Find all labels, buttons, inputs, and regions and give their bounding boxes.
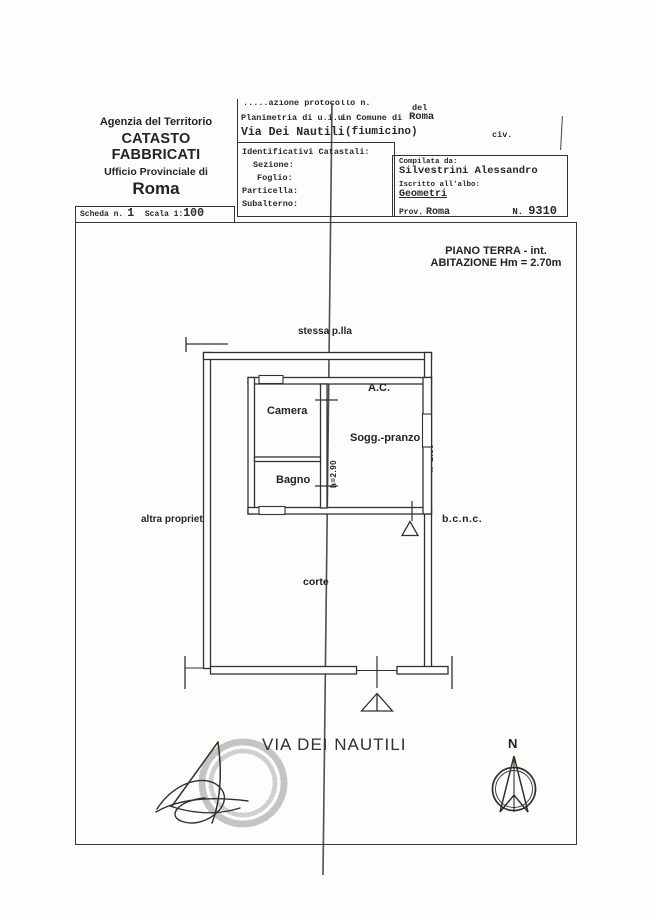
compiler-name: Silvestrini Alessandro xyxy=(399,166,561,177)
albo-value: Geometri xyxy=(399,189,561,200)
label-corte: corte xyxy=(303,576,329,588)
label-ac: A.C. xyxy=(368,382,390,394)
floor-header-line1: PIANO TERRA - int. xyxy=(418,245,574,257)
prov-label: Prov. xyxy=(399,208,423,217)
agency-line: Agenzia del Territorio xyxy=(78,116,234,128)
cadastral-ids-box: Identificativi Catastali: Sezione: Fogli… xyxy=(237,142,395,217)
field-foglio: Foglio: xyxy=(242,172,390,185)
scheda-box: Scheda n. 1 Scala 1: 100 xyxy=(75,206,235,223)
field-sezione: Sezione: xyxy=(242,159,390,172)
agency-header: Agenzia del Territorio CATASTO FABBRICAT… xyxy=(78,116,234,199)
label-stessa-particella: stessa p.lla xyxy=(298,326,352,337)
cadastral-ids-title: Identificativi Catastali: xyxy=(242,146,390,159)
albo-label: Iscritto all'albo: xyxy=(399,181,561,189)
scheda-number: 1 xyxy=(127,207,134,220)
agency-catasto-title: CATASTO FABBRICATI xyxy=(78,131,234,163)
compiler-box: Compilata da: Silvestrini Alessandro Isc… xyxy=(392,155,568,217)
label-camera: Camera xyxy=(267,405,307,417)
label-soggiorno-pranzo: Sogg.-pranzo xyxy=(350,432,420,444)
comune-value: Roma xyxy=(409,111,434,123)
street-title: VIA DEI NAUTILI xyxy=(262,735,406,755)
comune-label: in Comune di xyxy=(341,113,402,123)
scheda-label: Scheda n. xyxy=(80,210,123,219)
registration-number-label: N. xyxy=(512,207,523,217)
registration-number-value: 9310 xyxy=(528,204,557,218)
protocol-number-line: .....azione protocollo n. xyxy=(243,100,413,109)
planimetria-label: Planimetria di u.i.u xyxy=(241,113,343,123)
label-height-left: h=2.90 xyxy=(329,446,338,488)
scala-value: 100 xyxy=(183,207,204,220)
compass-north-label: N xyxy=(508,736,517,751)
field-subalterno: Subalterno: xyxy=(242,198,390,211)
scala-label: Scala 1: xyxy=(145,210,183,219)
scanned-cadastral-document: Agenzia del Territorio CATASTO FABBRICAT… xyxy=(0,0,650,918)
protocol-box-left-border xyxy=(237,99,238,143)
civ-label: civ. xyxy=(492,130,512,140)
label-height-right: h=2.80 xyxy=(426,430,435,472)
floor-header-line2: ABITAZIONE Hm = 2.70m xyxy=(418,257,574,269)
field-particella: Particella: xyxy=(242,185,390,198)
label-bagno: Bagno xyxy=(276,474,310,486)
agency-office-line: Ufficio Provinciale di xyxy=(78,166,234,178)
prov-value: Roma xyxy=(426,207,450,218)
label-bcnc: b.c.n.c. xyxy=(442,513,482,525)
street-field-value: Via Dei Nautili xyxy=(241,126,345,139)
protocol-box-right-border xyxy=(560,116,563,150)
agency-city: Roma xyxy=(78,179,234,199)
label-altra-proprieta: altra proprietà xyxy=(141,514,208,525)
floor-header: PIANO TERRA - int. ABITAZIONE Hm = 2.70m xyxy=(418,245,574,269)
street-note: (fiumicino) xyxy=(345,126,418,138)
